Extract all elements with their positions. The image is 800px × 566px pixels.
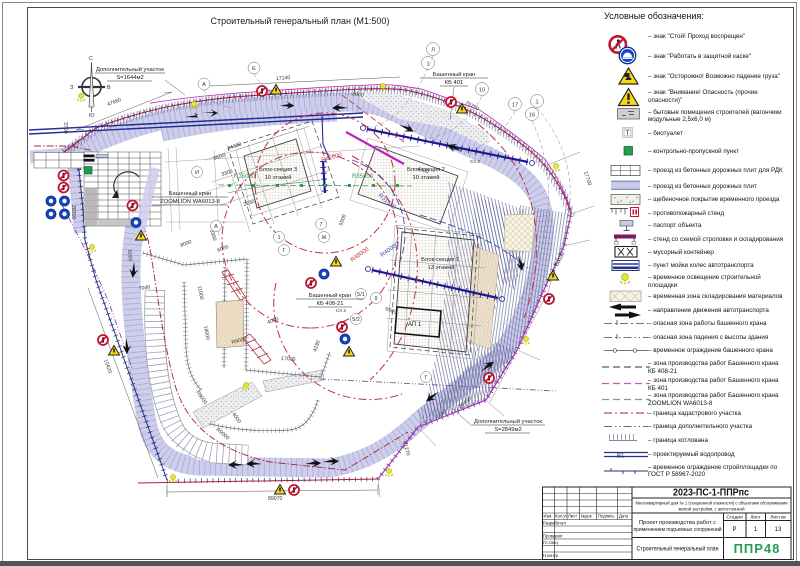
svg-text:Разработал: Разработал bbox=[543, 521, 566, 526]
svg-text:10 этажей: 10 этажей bbox=[412, 174, 439, 181]
svg-text:8000: 8000 bbox=[180, 239, 193, 249]
svg-text:Дата: Дата bbox=[619, 514, 629, 519]
svg-text:2230: 2230 bbox=[243, 199, 256, 208]
svg-text:R48000: R48000 bbox=[350, 246, 371, 263]
svg-text:28300: 28300 bbox=[70, 205, 76, 220]
svg-text:Строительный генеральный план: Строительный генеральный план bbox=[637, 546, 719, 553]
svg-text:Башенный кран: Башенный кран bbox=[309, 292, 352, 299]
svg-text:10 этажей: 10 этажей bbox=[264, 174, 291, 181]
svg-text:89070: 89070 bbox=[268, 496, 283, 502]
svg-text:13: 13 bbox=[775, 527, 782, 533]
svg-text:T: T bbox=[626, 131, 630, 137]
svg-text:13 этажей: 13 этажей bbox=[427, 264, 454, 271]
svg-text:Гл.спец: Гл.спец bbox=[543, 540, 558, 545]
svg-text:R9000: R9000 bbox=[194, 390, 208, 406]
svg-text:5/1: 5/1 bbox=[357, 292, 365, 298]
svg-text:В: В bbox=[107, 85, 111, 91]
svg-text:S=2849м2: S=2849м2 bbox=[494, 427, 521, 433]
svg-text:Блок-секция 2: Блок-секция 2 bbox=[407, 167, 445, 173]
svg-text:21270: 21270 bbox=[401, 441, 411, 457]
svg-text:9: 9 bbox=[374, 296, 377, 302]
svg-text:4000: 4000 bbox=[230, 412, 242, 425]
svg-text:Л: Л bbox=[431, 48, 435, 54]
svg-text:17140: 17140 bbox=[276, 75, 291, 82]
svg-text:1: 1 bbox=[535, 100, 538, 106]
svg-text:жилой застройки, с автостоянко: жилой застройки, с автостоянкой bbox=[679, 507, 746, 512]
svg-text:Дополнительный участок: Дополнительный участок bbox=[96, 66, 164, 73]
svg-text:А: А bbox=[214, 224, 218, 230]
svg-text:6600: 6600 bbox=[213, 153, 226, 162]
svg-text:7: 7 bbox=[319, 222, 322, 228]
svg-text:R35000: R35000 bbox=[352, 174, 374, 180]
svg-text:1: 1 bbox=[754, 527, 758, 533]
svg-text:Башенный кран: Башенный кран bbox=[433, 71, 476, 78]
svg-text:Е: Е bbox=[252, 66, 256, 72]
svg-text:Башенный кран: Башенный кран bbox=[169, 190, 212, 197]
svg-text:1: 1 bbox=[277, 235, 280, 241]
svg-text:Листов: Листов bbox=[770, 515, 786, 521]
svg-text:АП 1: АП 1 bbox=[408, 322, 422, 328]
svg-text:4230: 4230 bbox=[312, 340, 322, 353]
svg-text:Стадия: Стадия bbox=[726, 515, 743, 521]
svg-text:И: И bbox=[195, 170, 199, 176]
svg-text:10: 10 bbox=[479, 88, 485, 94]
svg-text:Блок-секция 3: Блок-секция 3 bbox=[259, 167, 297, 173]
svg-text:КБ 401: КБ 401 bbox=[445, 80, 463, 86]
svg-text:R40000: R40000 bbox=[380, 241, 401, 258]
svg-text:С: С bbox=[89, 56, 93, 62]
svg-text:10420: 10420 bbox=[102, 359, 113, 375]
svg-text:3700: 3700 bbox=[62, 122, 68, 134]
svg-text:Ю: Ю bbox=[89, 113, 95, 119]
svg-text:№док: №док bbox=[581, 514, 592, 519]
svg-text:5/2: 5/2 bbox=[352, 317, 360, 323]
svg-text:11000: 11000 bbox=[196, 285, 204, 300]
svg-text:Изм.: Изм. bbox=[544, 514, 553, 519]
svg-text:КБ 408-21: КБ 408-21 bbox=[317, 301, 344, 307]
svg-text:Сп 2: Сп 2 bbox=[336, 308, 346, 314]
svg-text:Ж: Ж bbox=[321, 235, 326, 241]
svg-text:Г: Г bbox=[283, 248, 286, 254]
svg-text:ППР48: ППР48 bbox=[734, 541, 781, 556]
svg-text:применением подъемных сооружен: применением подъемных сооружений bbox=[634, 526, 722, 533]
svg-text:R9000: R9000 bbox=[215, 427, 231, 441]
svg-text:16: 16 bbox=[529, 113, 535, 119]
svg-text:17000: 17000 bbox=[281, 356, 296, 363]
svg-text:Проект производства работ с: Проект производства работ с bbox=[639, 520, 716, 526]
svg-text:Лист: Лист bbox=[750, 515, 761, 521]
svg-text:Блок-секция 1.: Блок-секция 1. bbox=[421, 257, 461, 263]
svg-text:В1: В1 bbox=[617, 454, 625, 460]
svg-text:17: 17 bbox=[512, 103, 518, 109]
svg-text:R42000: R42000 bbox=[321, 152, 343, 164]
svg-text:З: З bbox=[70, 85, 74, 91]
svg-text:6000: 6000 bbox=[126, 250, 133, 262]
svg-text:5500: 5500 bbox=[338, 214, 348, 227]
svg-text:47660: 47660 bbox=[107, 97, 123, 108]
svg-text:6500: 6500 bbox=[384, 306, 397, 316]
svg-text:Кол.уч: Кол.уч bbox=[555, 514, 568, 519]
svg-text:6000: 6000 bbox=[217, 244, 230, 254]
svg-text:2023-ПС-1-ППРпс: 2023-ПС-1-ППРпс bbox=[673, 488, 749, 499]
svg-text:Проверил: Проверил bbox=[543, 534, 563, 539]
svg-text:1: 1 bbox=[426, 62, 429, 68]
svg-text:Н.контр: Н.контр bbox=[543, 553, 559, 558]
svg-text:Сп 2: Сп 2 bbox=[470, 159, 480, 165]
svg-text:Р: Р bbox=[732, 527, 736, 533]
svg-text:ZOOMLION WA6013-8: ZOOMLION WA6013-8 bbox=[160, 199, 220, 205]
svg-text:Многоквартирный дом № 1 (секци: Многоквартирный дом № 1 (секционной этаж… bbox=[636, 501, 788, 506]
svg-text:А: А bbox=[202, 82, 206, 88]
svg-text:Дополнительный участок: Дополнительный участок bbox=[474, 418, 542, 425]
svg-text:Г: Г bbox=[425, 375, 428, 381]
svg-text:Лист: Лист bbox=[568, 514, 577, 519]
svg-text:Подпись: Подпись bbox=[598, 514, 615, 519]
svg-text:17700: 17700 bbox=[582, 171, 592, 187]
svg-text:18000: 18000 bbox=[202, 325, 210, 340]
svg-text:S=1644м2: S=1644м2 bbox=[116, 75, 143, 81]
